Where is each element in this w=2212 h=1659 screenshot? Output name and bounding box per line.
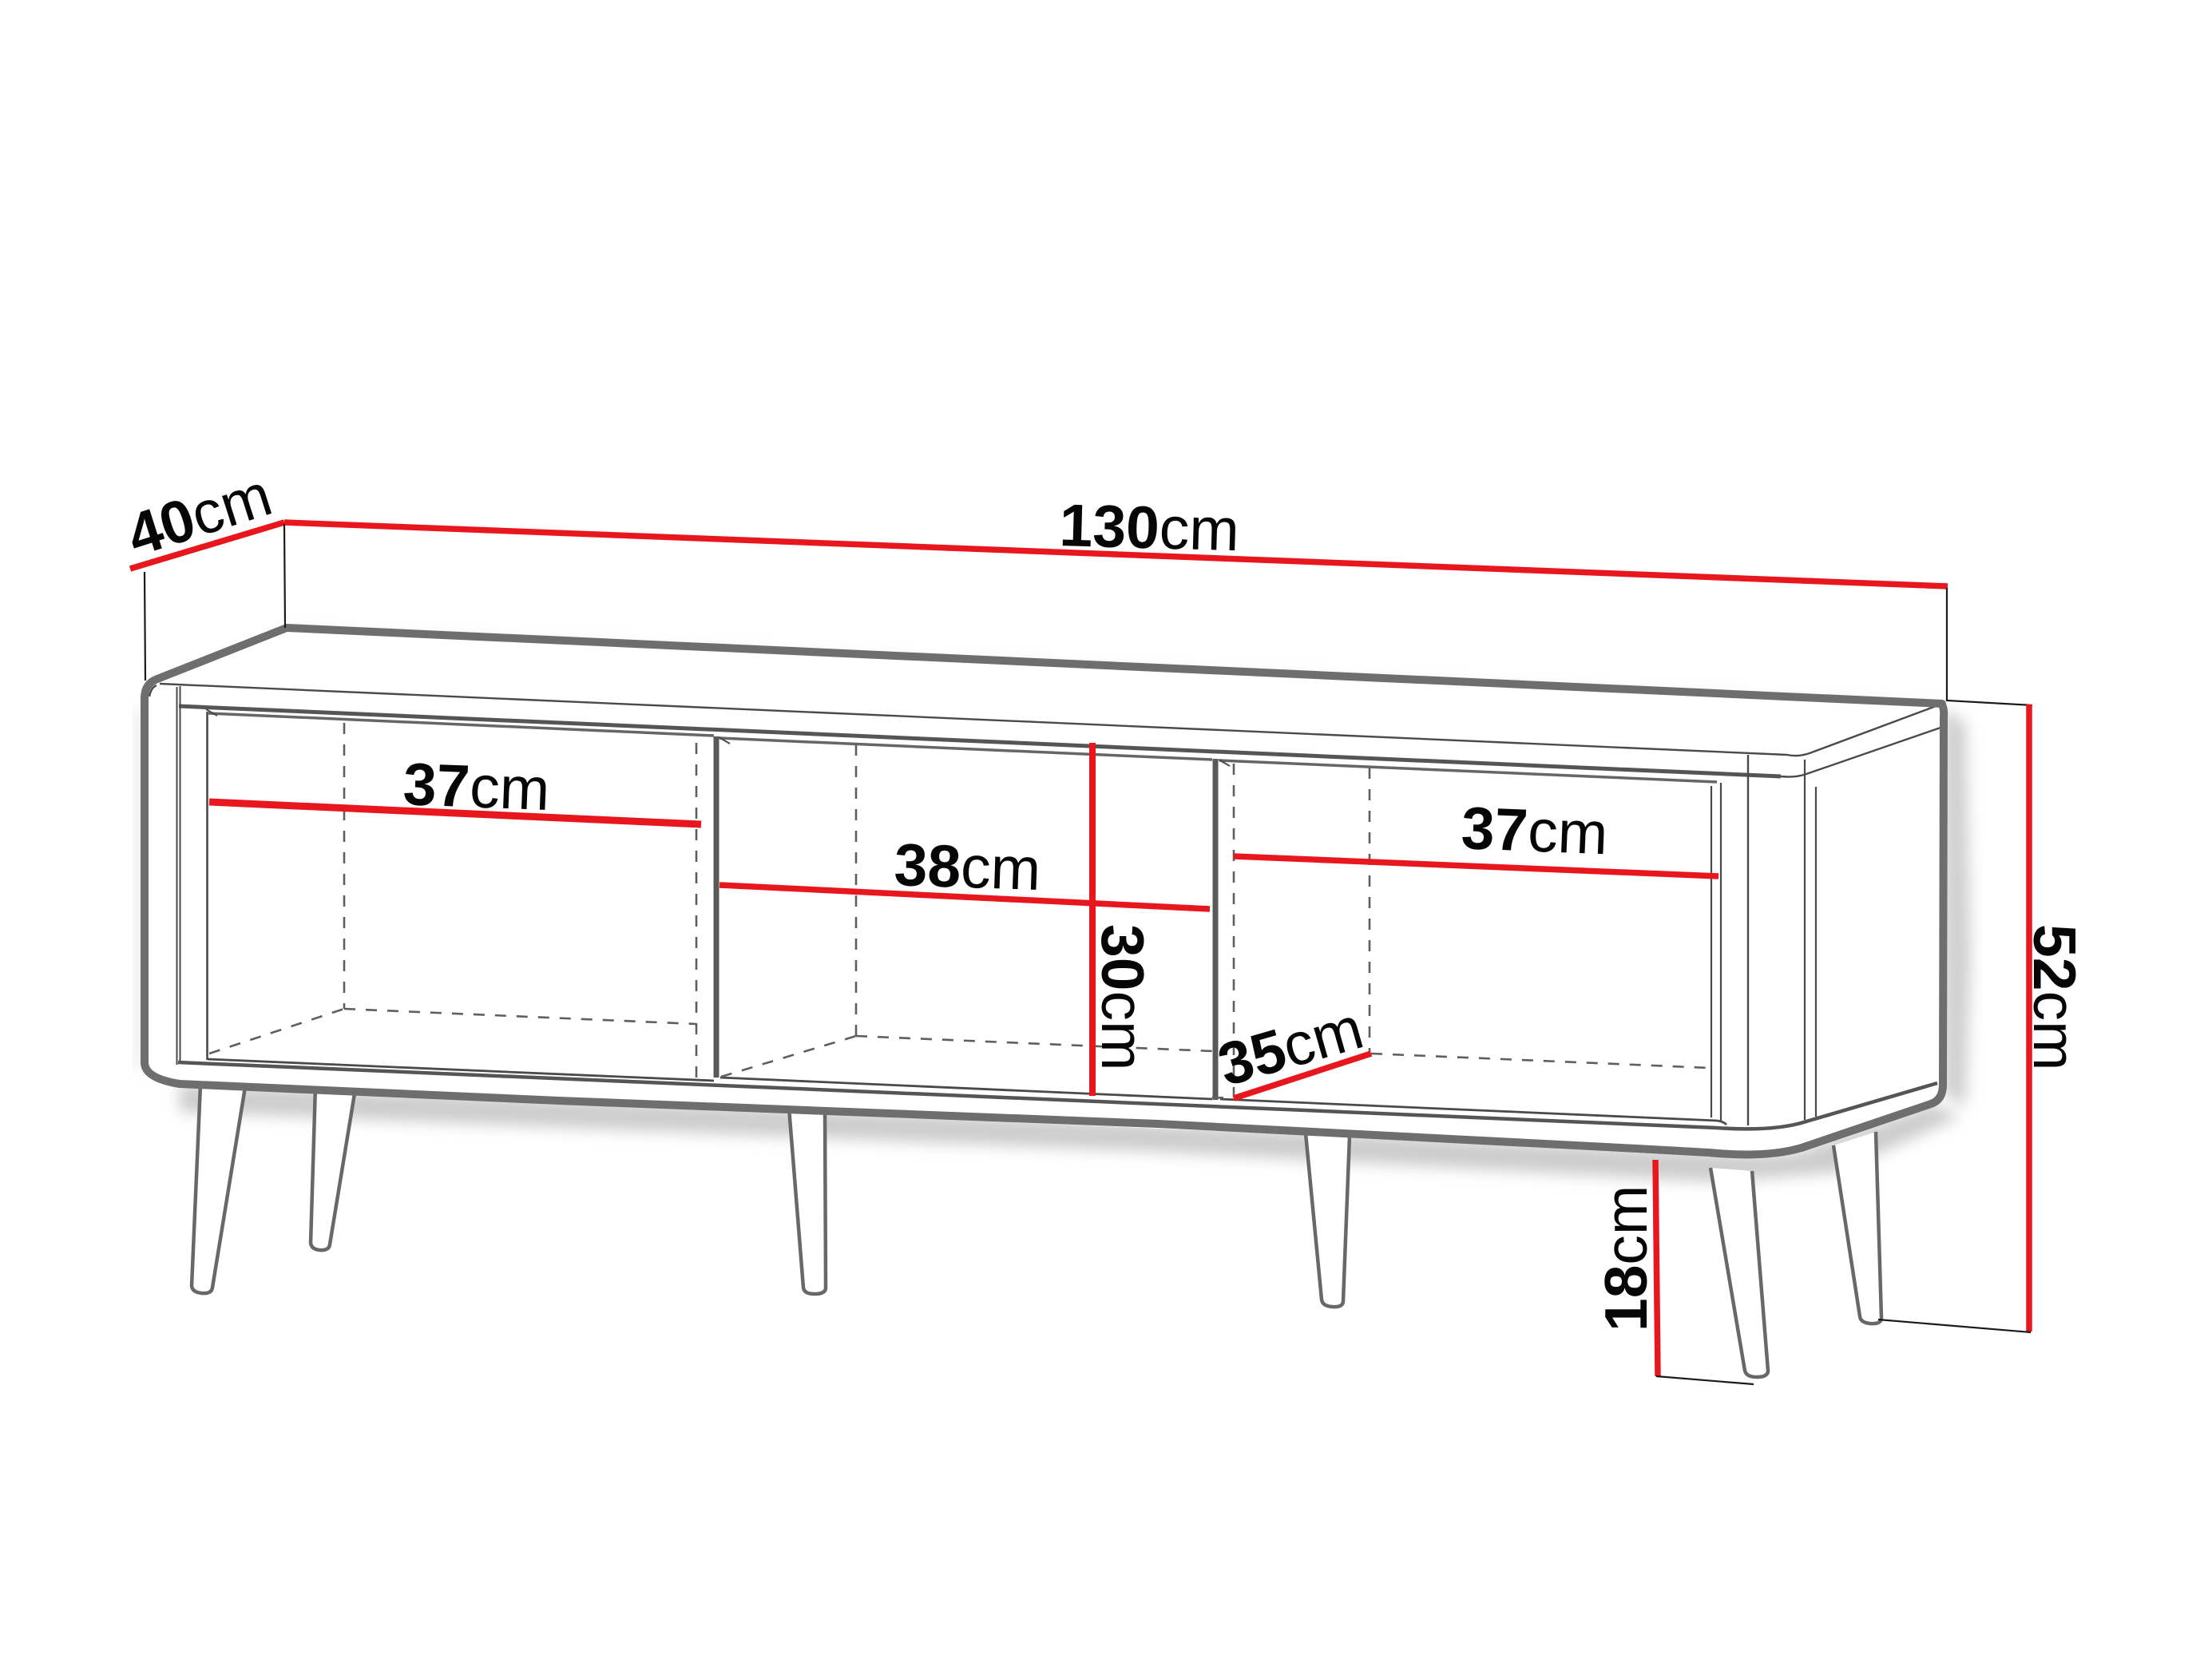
svg-text:30cm: 30cm	[1089, 924, 1156, 1070]
svg-text:130cm: 130cm	[1059, 491, 1240, 563]
svg-text:18cm: 18cm	[1592, 1185, 1659, 1332]
svg-text:52cm: 52cm	[2021, 924, 2088, 1070]
svg-text:37cm: 37cm	[402, 750, 551, 823]
svg-text:37cm: 37cm	[1460, 794, 1609, 867]
svg-text:38cm: 38cm	[893, 831, 1041, 903]
